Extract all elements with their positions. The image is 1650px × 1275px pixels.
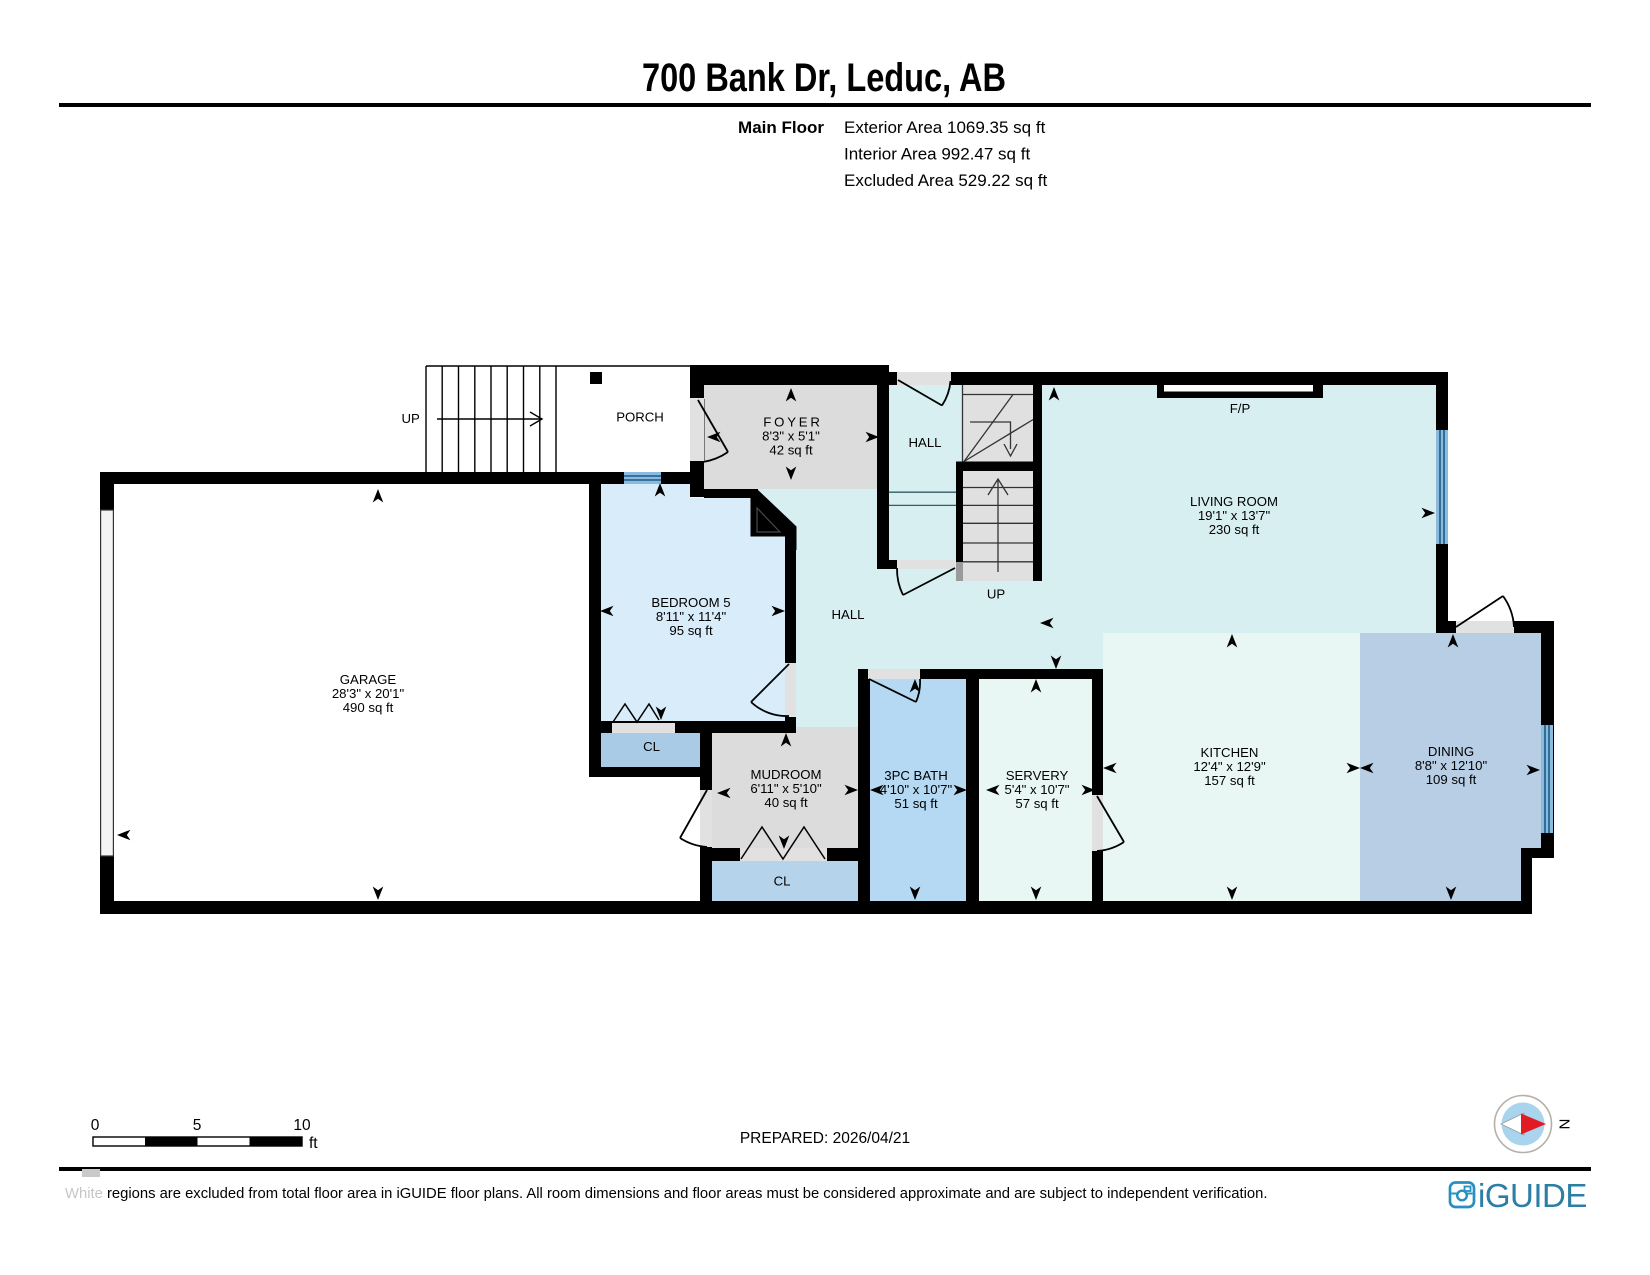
svg-text:CL: CL — [643, 739, 660, 754]
svg-text:6'11" x 5'10": 6'11" x 5'10" — [750, 781, 822, 796]
svg-text:N: N — [1556, 1119, 1573, 1130]
svg-text:SERVERY: SERVERY — [1006, 768, 1069, 783]
svg-text:BEDROOM 5: BEDROOM 5 — [651, 595, 730, 610]
svg-text:CL: CL — [774, 874, 791, 889]
svg-text:UP: UP — [402, 411, 421, 426]
svg-text:40 sq ft: 40 sq ft — [764, 795, 808, 810]
svg-text:700 Bank Dr, Leduc, AB: 700 Bank Dr, Leduc, AB — [642, 56, 1006, 100]
svg-text:5'4" x 10'7": 5'4" x 10'7" — [1005, 782, 1070, 797]
svg-text:0: 0 — [91, 1117, 100, 1134]
svg-text:95 sq ft: 95 sq ft — [669, 623, 713, 638]
svg-text:10: 10 — [293, 1117, 311, 1134]
svg-text:4'10" x 10'7": 4'10" x 10'7" — [880, 782, 953, 797]
svg-text:ft: ft — [309, 1135, 318, 1152]
svg-text:Exterior Area 1069.35 sq ft: Exterior Area 1069.35 sq ft — [844, 118, 1046, 137]
svg-text:230 sq ft: 230 sq ft — [1209, 522, 1260, 537]
svg-text:28'3" x 20'1": 28'3" x 20'1" — [332, 686, 405, 701]
svg-text:White regions are excluded fro: White regions are excluded from total fl… — [65, 1186, 1267, 1202]
svg-text:PREPARED: 2026/04/21: PREPARED: 2026/04/21 — [740, 1130, 910, 1147]
svg-text:Main Floor: Main Floor — [738, 118, 824, 137]
svg-text:3PC BATH: 3PC BATH — [884, 768, 948, 783]
svg-text:LIVING ROOM: LIVING ROOM — [1190, 494, 1278, 509]
svg-text:KITCHEN: KITCHEN — [1201, 745, 1259, 760]
svg-text:490 sq ft: 490 sq ft — [343, 700, 394, 715]
svg-text:12'4" x 12'9": 12'4" x 12'9" — [1193, 759, 1266, 774]
svg-text:8'11" x 11'4": 8'11" x 11'4" — [656, 609, 727, 624]
svg-text:FOYER: FOYER — [763, 415, 822, 430]
svg-text:19'1" x 13'7": 19'1" x 13'7" — [1198, 508, 1271, 523]
svg-text:8'8" x 12'10": 8'8" x 12'10" — [1415, 758, 1488, 773]
svg-text:Interior Area 992.47 sq ft: Interior Area 992.47 sq ft — [844, 145, 1030, 164]
svg-text:8'3" x 5'1": 8'3" x 5'1" — [762, 429, 820, 444]
svg-text:F/P: F/P — [1230, 401, 1251, 416]
svg-text:109 sq ft: 109 sq ft — [1426, 772, 1477, 787]
svg-text:iGUIDE: iGUIDE — [1478, 1177, 1587, 1214]
svg-text:GARAGE: GARAGE — [340, 672, 397, 687]
svg-text:57 sq ft: 57 sq ft — [1015, 796, 1059, 811]
svg-text:42 sq ft: 42 sq ft — [769, 443, 813, 458]
svg-text:157 sq ft: 157 sq ft — [1204, 773, 1255, 788]
svg-text:DINING: DINING — [1428, 744, 1474, 759]
svg-text:5: 5 — [193, 1117, 202, 1134]
svg-text:HALL: HALL — [909, 435, 942, 450]
svg-text:PORCH: PORCH — [616, 410, 664, 425]
svg-text:Excluded Area 529.22 sq ft: Excluded Area 529.22 sq ft — [844, 171, 1047, 190]
svg-text:51 sq ft: 51 sq ft — [894, 796, 938, 811]
svg-text:UP: UP — [987, 587, 1006, 602]
svg-text:HALL: HALL — [832, 607, 865, 622]
svg-text:MUDROOM: MUDROOM — [750, 767, 821, 782]
